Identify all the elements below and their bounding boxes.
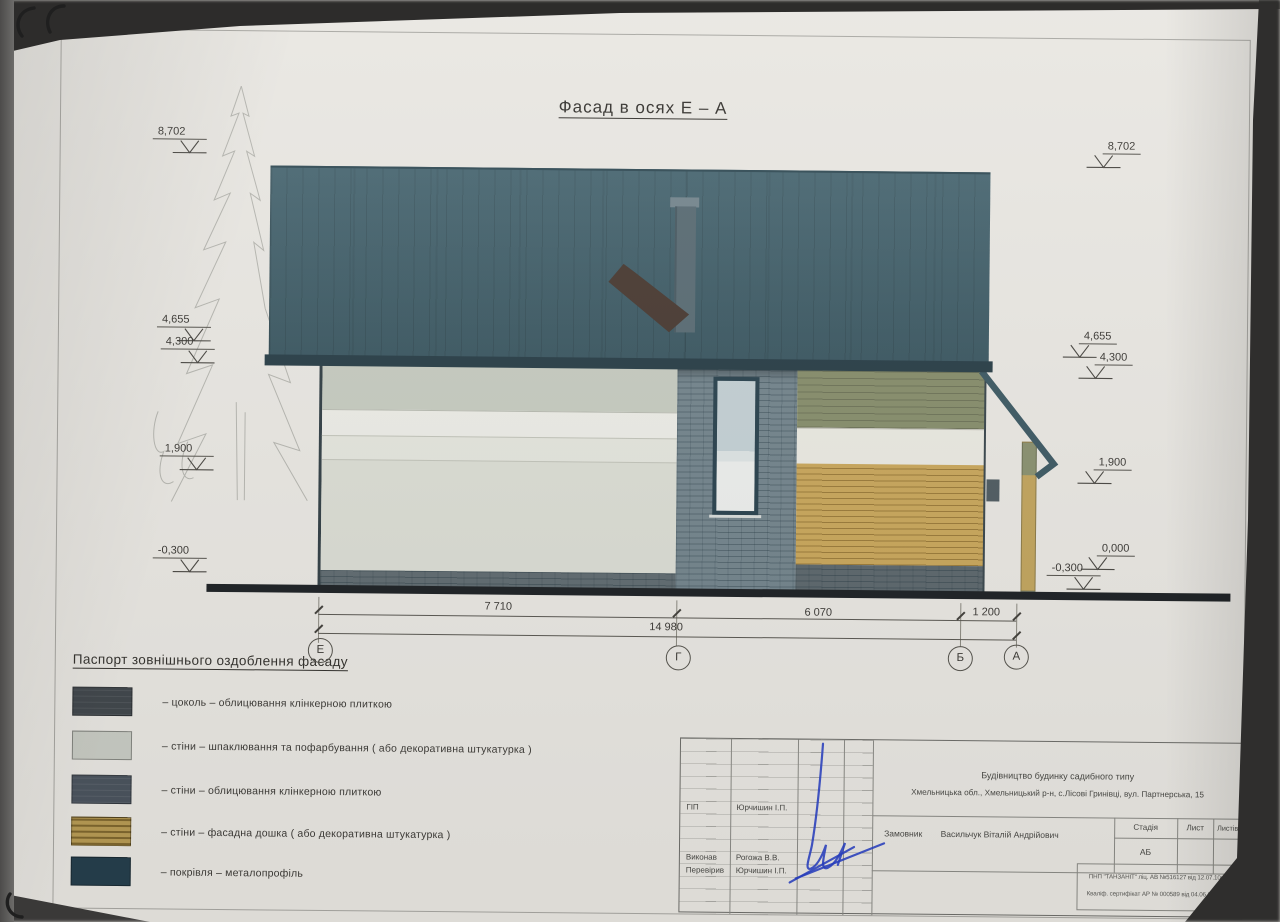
elevation-mark-left-4300: 4,300 (161, 335, 215, 364)
axis-bubble-b: Б (948, 646, 973, 671)
spiral-coil-icon (14, 2, 74, 42)
legend-item-plinth: – цоколь – облицювання клінкерною плитко… (72, 687, 392, 719)
role-author-label: Виконав (686, 852, 717, 861)
elevation-mark-right-4300: 4,300 (1095, 351, 1133, 379)
wall-left-upper-band (322, 363, 677, 412)
wall-right-olive-siding (797, 368, 986, 430)
legend-item-paint: – стіни – шпаклювання та пофарбування ( … (72, 731, 532, 764)
dimension-label-7710: 7 710 (448, 600, 548, 613)
license-line-2: Кваліф. сертифікат АР № 000589 від 04.06… (1078, 890, 1237, 899)
elevation-mark-left-neg0300: -0,300 (153, 544, 207, 573)
elevation-mark-right-neg0300: -0,300 (1046, 562, 1100, 591)
legend-item-label: – стіни – облицювання клінкерною плиткою (161, 784, 381, 798)
level-arrow-icon (1077, 470, 1111, 484)
level-arrow-icon (180, 457, 214, 471)
wall-right-facade-boards (796, 464, 985, 567)
drawing-title: Фасад в осях Е – А (473, 96, 813, 119)
role-checker-label: Перевірив (686, 865, 724, 874)
legend-item-label: – покрівля – металопрофіль (161, 866, 303, 879)
wall-left-painted-panel (321, 459, 677, 574)
photo-of-drawing-sheet: Фасад в осях Е – А (0, 0, 1280, 922)
level-arrow-icon (1079, 365, 1113, 379)
legend-swatch-clinker (71, 775, 131, 805)
roof-plane-detail (601, 250, 702, 341)
dimension-label-6070: 6 070 (768, 606, 868, 619)
signature (766, 734, 968, 896)
legend-swatch-roofing (71, 857, 131, 887)
sheet-header: Лист (1177, 823, 1213, 832)
legend-title: Паспорт зовнішнього оздоблення фасаду (73, 652, 348, 670)
elevation-mark-right-8702: 8,702 (1103, 140, 1141, 168)
license-line-1: ПНП "ТАНЗАНІТ" ліц. АВ №516127 від 12.07… (1078, 873, 1237, 882)
legend-swatch-plinth (72, 687, 132, 717)
dimension-label-1200: 1 200 (936, 606, 1036, 619)
dimension-label-total-14980: 14 980 (614, 621, 718, 634)
level-arrow-icon (1087, 154, 1121, 168)
axis-bubble-g: Г (666, 645, 691, 670)
sheets-header: Листів (1213, 824, 1242, 833)
axis-bubble-a: А (1004, 645, 1029, 670)
porch-roof-beam (977, 367, 1070, 486)
level-arrow-icon (173, 140, 207, 154)
legend-item-label: – цоколь – облицювання клінкерною плитко… (162, 696, 392, 710)
legend-item-label: – стіни – шпаклювання та пофарбування ( … (162, 740, 532, 756)
stage-value: АБ (1114, 847, 1177, 858)
spiral-binding-edge (0, 0, 14, 922)
legend-item-roofing: – покрівля – металопрофіль (71, 857, 304, 888)
legend-item-label: – стіни – фасадна дошка ( або декоративн… (161, 826, 450, 841)
window (712, 377, 759, 515)
role-gip-label: ГІП (686, 802, 698, 811)
axis-bubble-e: Е (308, 638, 333, 663)
stage-header: Стадія (1114, 823, 1177, 833)
license-box: ПНП "ТАНЗАНІТ" ліц. АВ №516127 від 12.07… (1076, 863, 1237, 912)
legend-item-boards: – стіни – фасадна дошка ( або декоративн… (71, 817, 451, 850)
level-arrow-icon (173, 559, 207, 573)
window-sill (709, 515, 761, 518)
spiral-coil-icon (4, 890, 54, 920)
legend-item-clinker: – стіни – облицювання клінкерною плиткою (71, 775, 381, 807)
level-arrow-icon (1063, 344, 1097, 358)
level-arrow-icon (181, 350, 215, 364)
legend-swatch-boards (71, 817, 131, 847)
elevation-mark-left-1900: 1,900 (160, 442, 214, 471)
wall-right-white-band (797, 428, 985, 468)
elevation-mark-right-0000: 0,000 (1097, 542, 1135, 570)
drawing-content: Фасад в осях Е – А (0, 0, 1280, 922)
legend-swatch-paint (72, 731, 132, 761)
level-arrow-icon (1066, 576, 1100, 590)
elevation-mark-right-1900: 1,900 (1093, 456, 1131, 484)
elevation-mark-left-8702: 8,702 (153, 125, 207, 154)
